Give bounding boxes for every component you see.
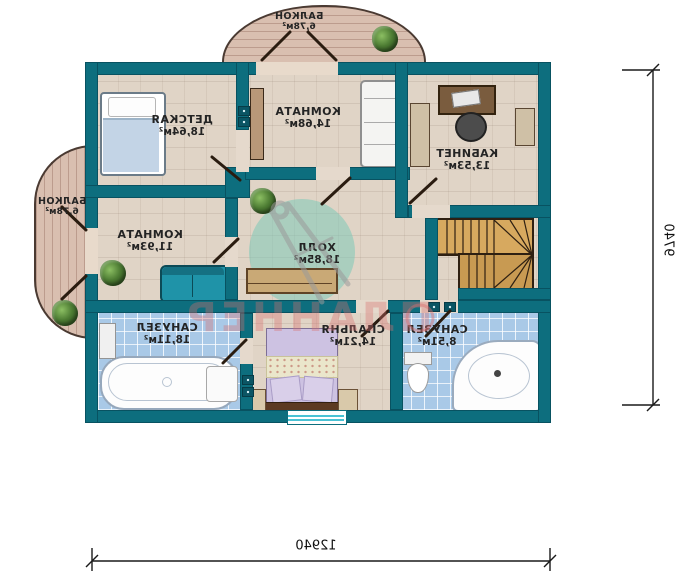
room-label-hall: ХОЛЛ18,85м² <box>294 241 340 267</box>
desk <box>438 85 496 115</box>
room-label-study: КАБИНЕТ13,53м² <box>436 147 498 173</box>
brand-watermark: ПЛАННЕР <box>183 295 432 341</box>
room-label-room-top: КОМНАТА14,68м² <box>275 105 341 131</box>
opening-roommid <box>225 237 238 267</box>
bedroom-window <box>287 410 347 425</box>
hall-bench <box>246 268 338 294</box>
plant <box>372 26 398 52</box>
study-cabinet-left <box>410 103 430 167</box>
opening-roomtop <box>316 167 350 180</box>
opening-bath-left <box>240 338 253 364</box>
plant <box>100 260 126 286</box>
nightstand-right <box>338 389 358 411</box>
desk-chair <box>455 112 487 142</box>
bed-runner <box>266 356 338 378</box>
wall-right <box>538 62 551 423</box>
wall-socket <box>242 387 254 397</box>
wall-stairs-left <box>425 218 438 300</box>
plant <box>52 300 78 326</box>
wall-socket <box>444 302 456 312</box>
study-cabinet-right <box>515 108 535 146</box>
bed-pillow <box>108 97 156 117</box>
wall-socket <box>238 117 250 127</box>
opening-nursery <box>236 130 249 172</box>
room-label-balcony-left: БАЛКОН6,78м² <box>38 196 87 218</box>
room-label-room-mid: КОМНАТА11,93м² <box>117 228 183 254</box>
room-label-nursery: ДЕТСКАЯ18,64м² <box>151 113 213 139</box>
floor-plan: БАЛКОН6,78м² БАЛКОН6,78м² ДЕТСКАЯ18,64м²… <box>0 0 700 575</box>
opening-balcony-top <box>256 62 338 75</box>
dimension-width: 12940 <box>295 539 336 554</box>
opening-balcony-left <box>85 228 98 274</box>
wardrobe <box>250 88 264 160</box>
bath-wall-cabinet <box>99 323 116 359</box>
wall-room-study <box>395 62 408 218</box>
pillow <box>270 375 303 403</box>
opening-study <box>412 205 450 218</box>
dimension-height: 9740 <box>661 223 676 256</box>
staircase <box>436 218 534 290</box>
wall-socket <box>242 375 254 385</box>
pillow <box>302 376 334 404</box>
wall-stairs-bottom <box>458 288 551 300</box>
laptop <box>451 89 481 108</box>
wall-socket <box>238 106 250 116</box>
plant <box>250 188 276 214</box>
shower-tray <box>206 366 238 402</box>
room-label-balcony-top: БАЛКОН6,78м² <box>275 11 324 33</box>
